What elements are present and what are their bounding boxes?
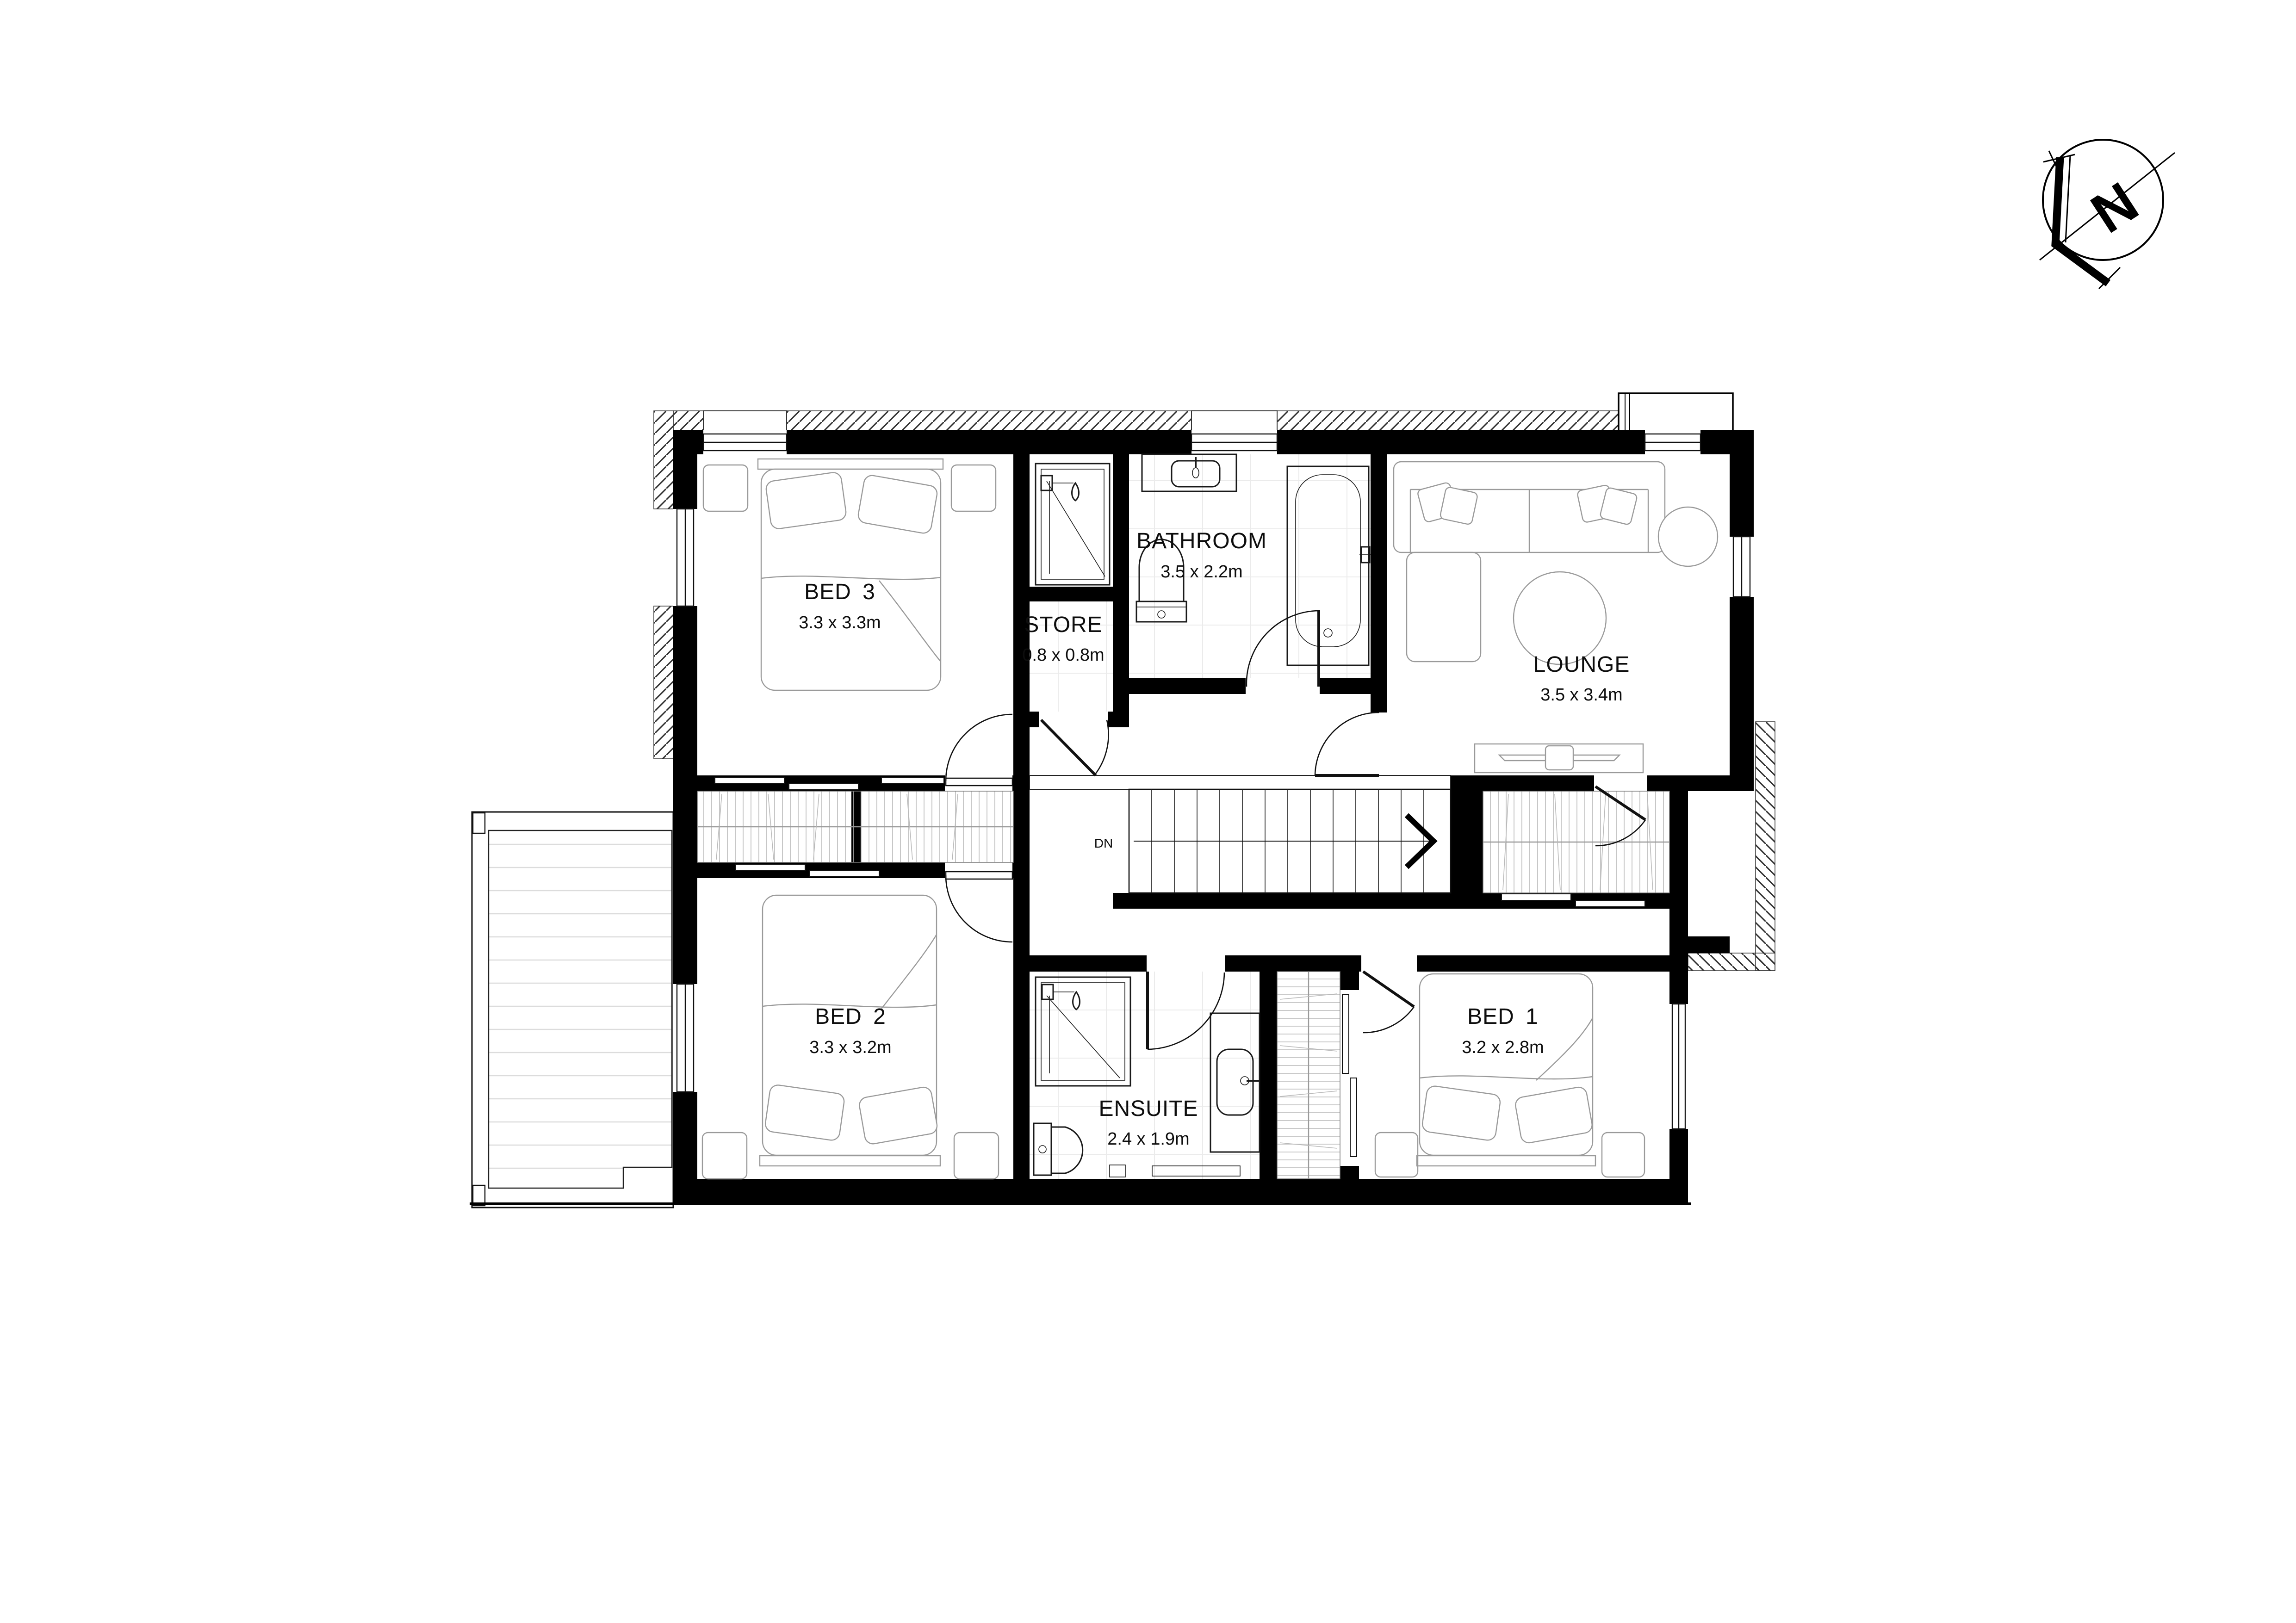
- room-dims-bathroom: 3.5 x 2.2m: [1160, 562, 1242, 582]
- bed3-top-window: [703, 430, 787, 454]
- cushion: [1440, 487, 1478, 525]
- wardrobe-sliding-door: [1342, 995, 1349, 1073]
- room-dims-bed1: 3.2 x 2.8m: [1462, 1038, 1544, 1057]
- nightstand: [1602, 1133, 1644, 1177]
- tv-cabinet: [1475, 744, 1643, 773]
- bed3-door: [946, 714, 1012, 786]
- wardrobe-west-row: [697, 777, 1013, 877]
- nightstand: [1375, 1133, 1418, 1177]
- shower: [1036, 464, 1110, 585]
- lounge-hall-door: [1315, 712, 1379, 775]
- headboard: [760, 1156, 940, 1166]
- nightstand: [702, 1133, 747, 1179]
- wardrobe-east: [1483, 791, 1669, 907]
- bed1-right-window: [1669, 1004, 1688, 1129]
- balcony-deck: [472, 812, 673, 1208]
- north-compass: N: [2040, 140, 2175, 289]
- wardrobe-sliding-door: [1350, 1078, 1357, 1157]
- room-dims-bed3: 3.3 x 3.3m: [799, 613, 881, 632]
- wardrobe-sliding-door: [1502, 894, 1571, 900]
- side-table: [1658, 507, 1718, 566]
- pillow: [765, 471, 847, 530]
- room-label-bathroom: BATHROOM: [1136, 529, 1267, 553]
- room-label-store: STORE: [1024, 613, 1102, 637]
- sofa-chaise: [1407, 552, 1481, 662]
- room-label-ensuite: ENSUITE: [1098, 1096, 1198, 1121]
- nightstand: [703, 465, 748, 511]
- room-dims-store: 0.8 x 0.8m: [1022, 645, 1104, 665]
- bed1-door: [1363, 972, 1414, 1033]
- bed2-furniture: [702, 895, 999, 1179]
- bed2-door: [946, 872, 1012, 942]
- room-label-bed1: BED 1: [1467, 1004, 1539, 1029]
- pillow: [1421, 1085, 1501, 1141]
- pillow: [764, 1084, 845, 1141]
- room-label-bed3: BED 3: [804, 580, 875, 604]
- room-dims-ensuite: 2.4 x 1.9m: [1107, 1129, 1189, 1149]
- lounge-top-window: [1645, 430, 1700, 454]
- floor-plan-page: DN: [0, 0, 2296, 1623]
- roof-protrusion: [1619, 393, 1733, 432]
- wardrobe-sliding-door: [1576, 900, 1645, 907]
- staircase: DN: [1030, 775, 1451, 893]
- room-dims-lounge: 3.5 x 3.4m: [1540, 685, 1622, 705]
- headboard: [1417, 1156, 1595, 1166]
- bed2-left-window: [673, 984, 697, 1092]
- lounge-furniture: [1394, 462, 1718, 773]
- nightstand: [951, 465, 996, 511]
- ground-line: [470, 1202, 1691, 1205]
- balcony-post-top: [473, 813, 485, 833]
- bed3-left-window: [673, 509, 697, 606]
- floor-plan-drawing: DN: [0, 0, 2296, 1623]
- store-door: [1041, 720, 1109, 775]
- cushion: [1600, 487, 1638, 525]
- nightstand: [954, 1133, 999, 1179]
- room-label-lounge: LOUNGE: [1533, 652, 1630, 677]
- bathroom-top-window: [1191, 430, 1277, 454]
- room-label-bed2: BED 2: [815, 1004, 886, 1029]
- stairs-down-label: DN: [1094, 836, 1113, 850]
- bed3-furniture: [703, 459, 996, 690]
- room-dims-bed2: 3.3 x 3.2m: [809, 1038, 891, 1057]
- coffee-table: [1514, 572, 1606, 664]
- headboard: [758, 459, 943, 469]
- lounge-right-window: [1730, 537, 1754, 597]
